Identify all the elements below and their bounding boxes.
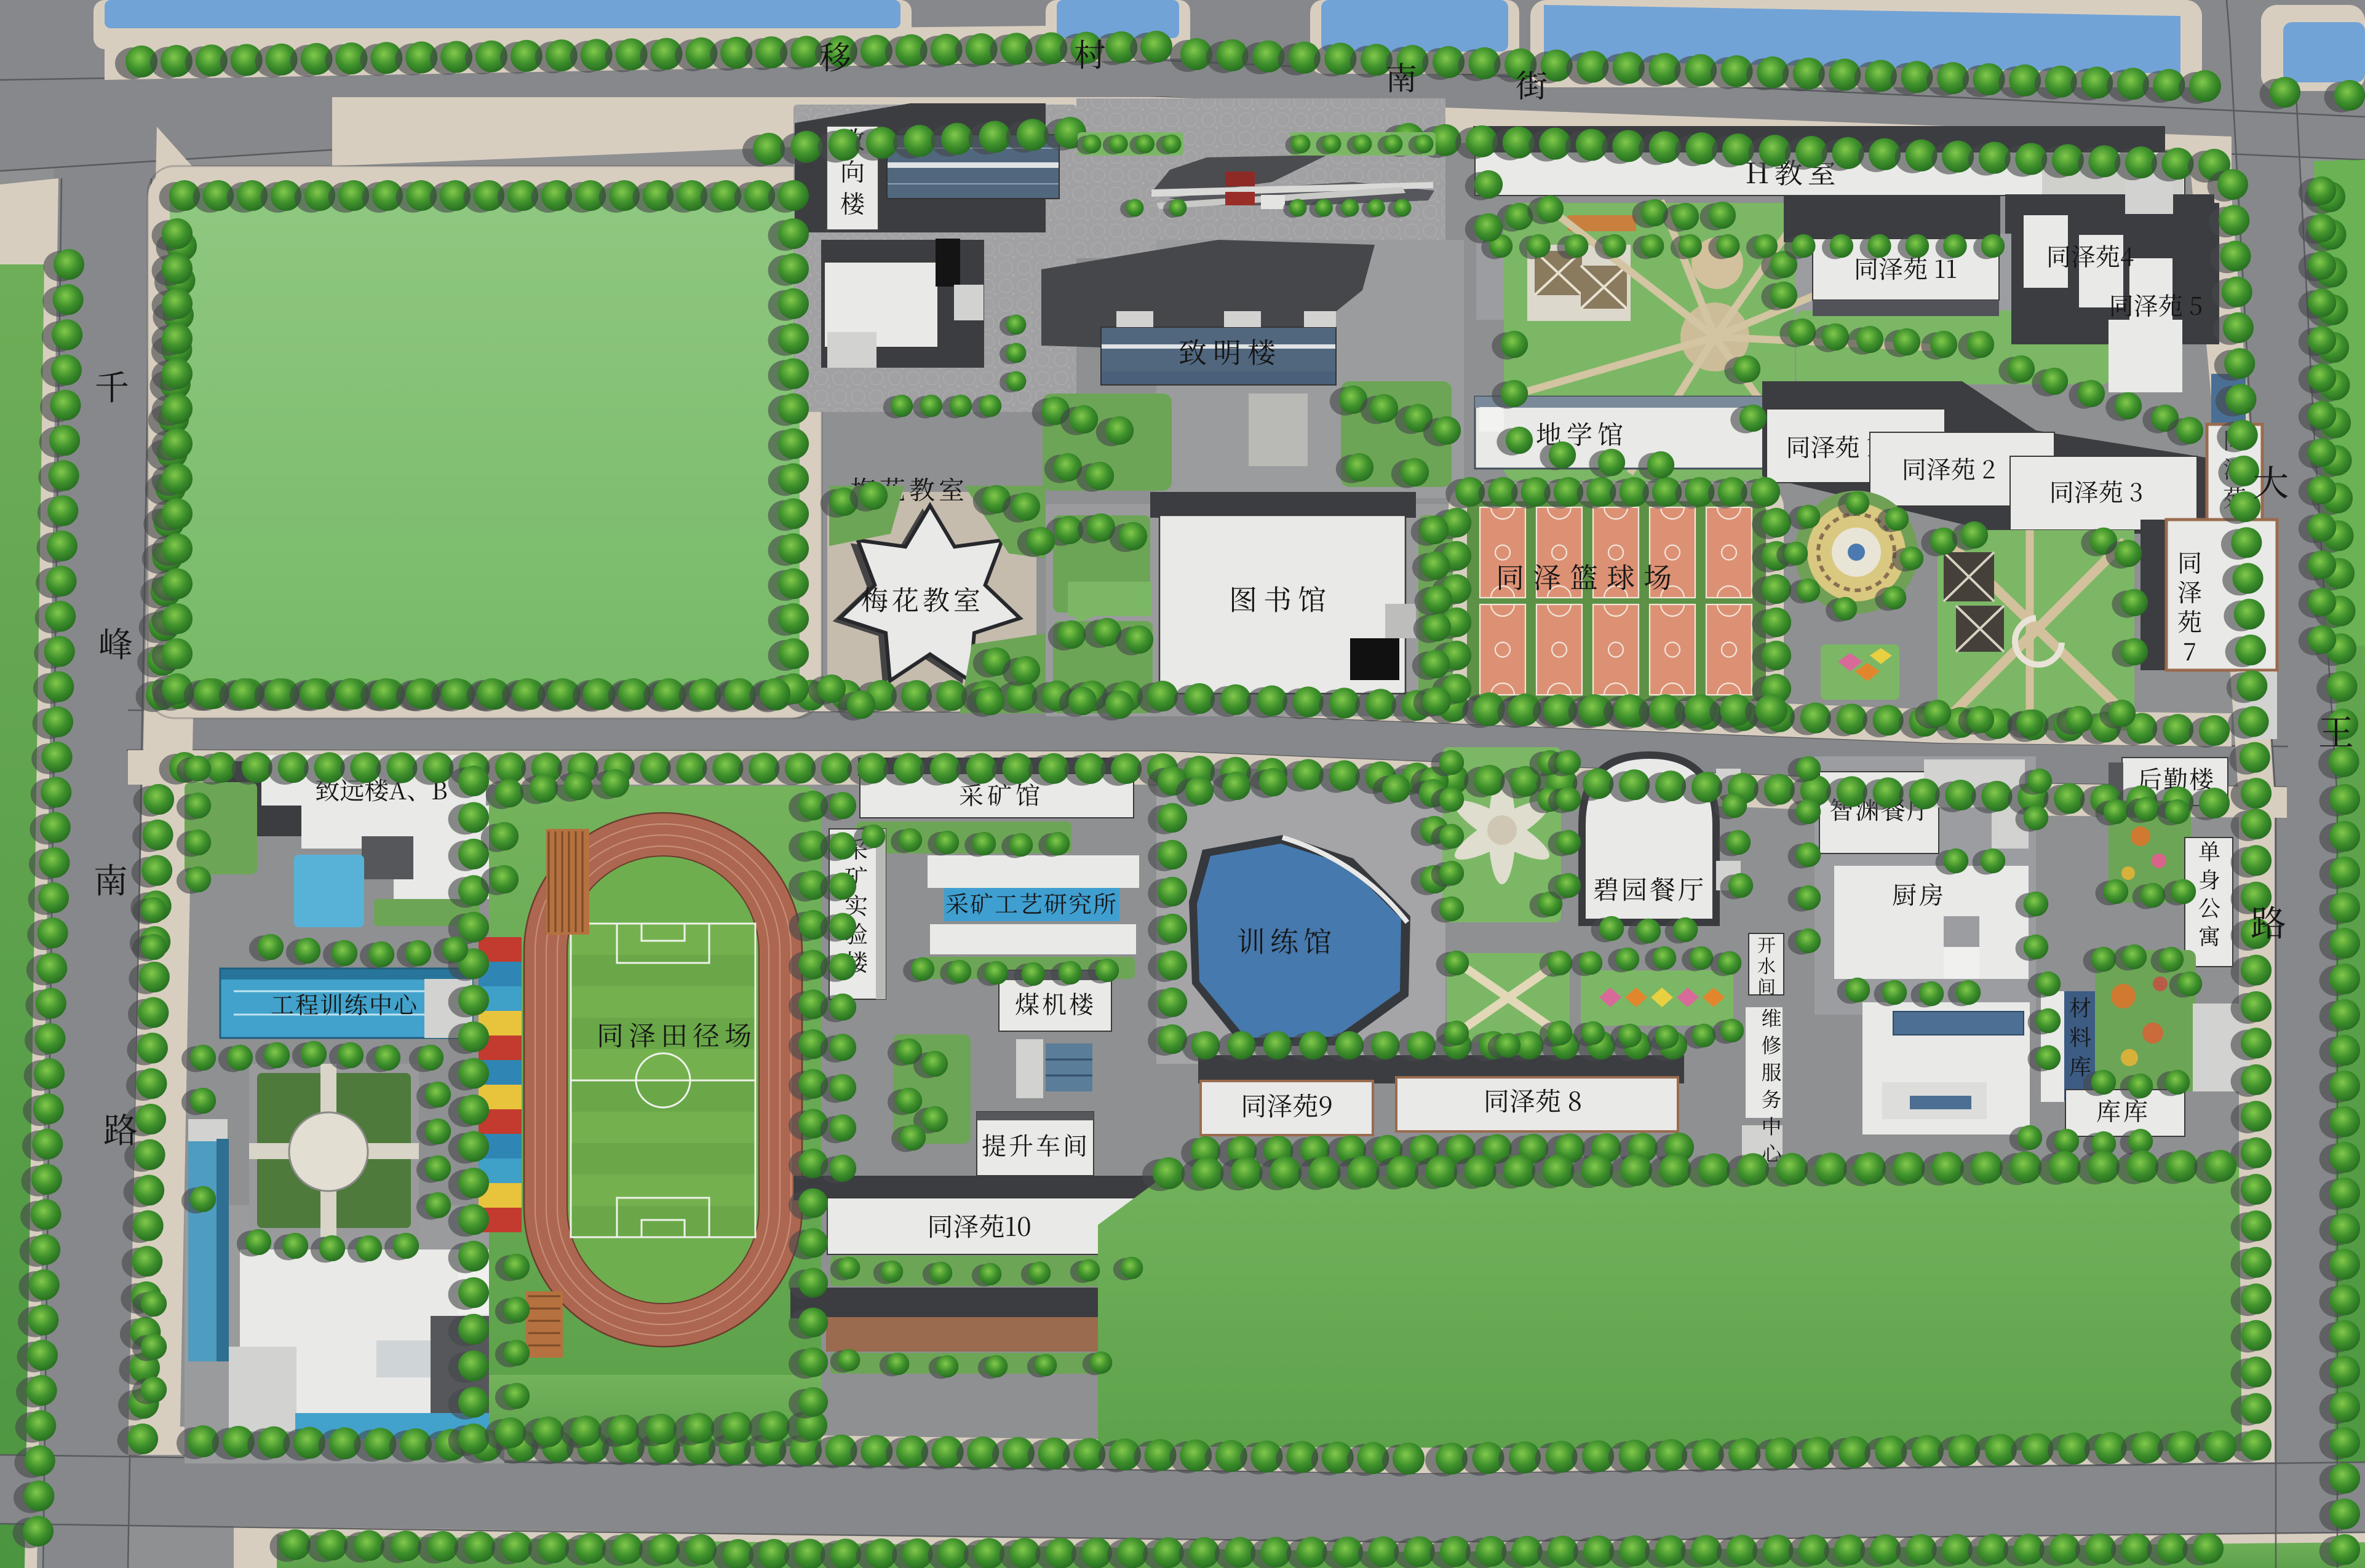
svg-text:同泽苑 8: 同泽苑 8	[1484, 1082, 1582, 1119]
svg-text:料: 料	[2069, 1021, 2091, 1052]
svg-text:中: 中	[1762, 1111, 1782, 1140]
svg-text:路: 路	[2251, 895, 2286, 946]
svg-text:南: 南	[1385, 53, 1417, 99]
svg-text:修: 修	[1762, 1030, 1782, 1059]
svg-text:7: 7	[2183, 633, 2196, 668]
svg-text:服: 服	[1762, 1057, 1782, 1086]
svg-text:同泽苑4: 同泽苑4	[2046, 238, 2134, 273]
svg-text:材: 材	[2069, 991, 2091, 1023]
svg-text:采矿工艺研究所: 采矿工艺研究所	[945, 885, 1118, 919]
svg-text:单: 单	[2198, 835, 2220, 866]
svg-text:同泽篮球场: 同泽篮球场	[1496, 556, 1680, 596]
svg-text:楼: 楼	[840, 185, 865, 220]
svg-text:提升车间: 提升车间	[982, 1127, 1090, 1162]
svg-text:同泽苑 3: 同泽苑 3	[2049, 473, 2144, 509]
svg-text:同泽苑10: 同泽苑10	[927, 1207, 1031, 1244]
svg-text:千: 千	[95, 361, 129, 410]
svg-text:厨房: 厨房	[1892, 876, 1946, 911]
svg-text:间: 间	[1757, 972, 1776, 999]
svg-text:街: 街	[1516, 60, 1548, 106]
svg-text:务: 务	[1762, 1084, 1782, 1113]
svg-text:王: 王	[2318, 704, 2354, 756]
svg-text:同泽苑9: 同泽苑9	[1241, 1087, 1333, 1123]
svg-text:路: 路	[103, 1104, 138, 1153]
svg-text:致明楼: 致明楼	[1179, 331, 1282, 371]
svg-text:同泽苑 5: 同泽苑 5	[2109, 287, 2203, 322]
svg-text:图书馆: 图书馆	[1229, 578, 1332, 619]
svg-text:碧园餐厅: 碧园餐厅	[1593, 870, 1706, 907]
svg-text:工程训练中心: 工程训练中心	[271, 986, 418, 1020]
svg-text:身: 身	[2198, 863, 2220, 895]
svg-text:同泽田径场: 同泽田径场	[597, 1014, 757, 1053]
svg-text:公: 公	[2198, 892, 2220, 923]
svg-text:梅花教室: 梅花教室	[861, 579, 984, 618]
svg-text:寓: 寓	[2198, 920, 2220, 951]
svg-text:煤机楼: 煤机楼	[1015, 986, 1096, 1021]
svg-text:同泽苑 1: 同泽苑 1	[1786, 429, 1877, 464]
svg-text:峰: 峰	[98, 618, 133, 667]
svg-text:同泽苑 2: 同泽苑 2	[1902, 451, 1996, 486]
svg-text:大: 大	[2253, 454, 2289, 506]
svg-text:村: 村	[1074, 30, 1106, 76]
svg-text:移: 移	[819, 32, 851, 78]
svg-text:维: 维	[1762, 1003, 1782, 1032]
svg-text:南: 南	[93, 854, 128, 903]
svg-text:训练馆: 训练馆	[1237, 920, 1337, 960]
